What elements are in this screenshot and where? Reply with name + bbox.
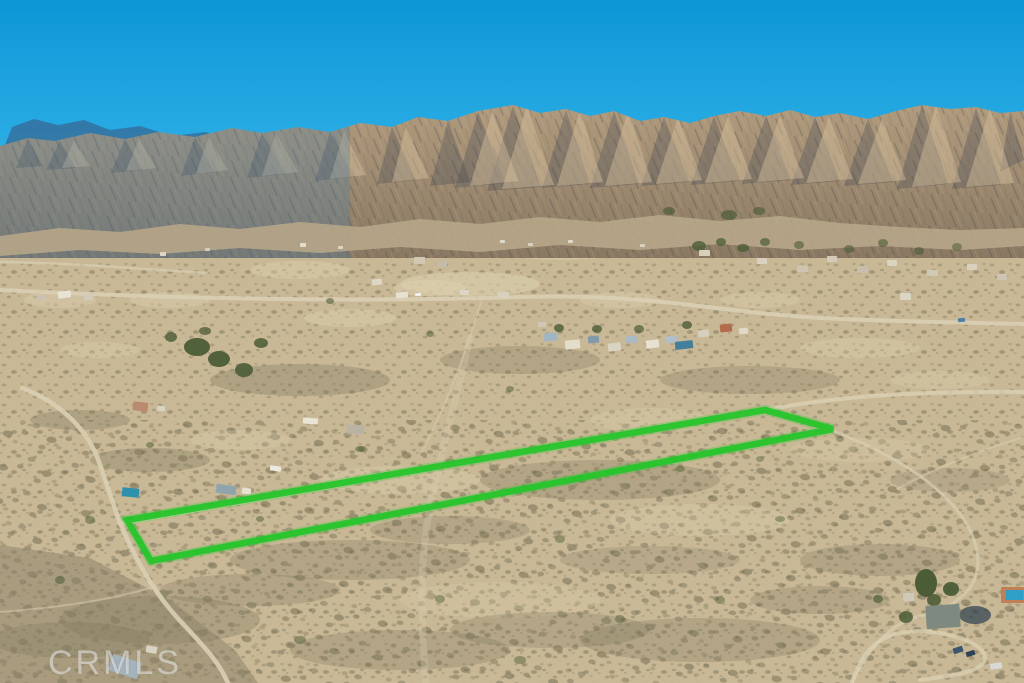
scrub-patch: [890, 468, 1010, 492]
scrub-patch: [90, 448, 210, 472]
building: [588, 335, 600, 343]
tree: [914, 247, 924, 255]
building: [626, 335, 638, 343]
building: [857, 266, 868, 273]
tree: [592, 325, 602, 333]
building: [38, 295, 46, 300]
tree: [952, 243, 962, 251]
shadow-pond: [959, 606, 991, 624]
building: [347, 424, 365, 434]
scrub-patch: [800, 544, 960, 576]
tree: [426, 331, 434, 337]
tree: [435, 595, 445, 603]
tree: [634, 325, 644, 333]
scrub-patch: [290, 630, 510, 670]
tree: [775, 516, 785, 522]
building: [903, 593, 915, 602]
scrub-patch: [230, 540, 470, 580]
building: [300, 243, 306, 247]
building: [133, 401, 149, 412]
shadow-pond: [959, 606, 991, 624]
tree: [873, 595, 883, 603]
tree: [85, 516, 95, 524]
tree: [844, 245, 854, 253]
building: [640, 244, 645, 247]
tree: [682, 321, 692, 329]
building: [739, 328, 749, 335]
building: [797, 266, 808, 272]
aerial-photo-canvas: [0, 0, 1024, 683]
tree: [663, 207, 675, 215]
building: [122, 487, 140, 498]
tree: [294, 636, 306, 644]
desert-floor: [0, 195, 1024, 683]
building: [84, 293, 94, 300]
tree: [256, 516, 264, 522]
tree: [692, 241, 706, 251]
tree: [555, 535, 565, 543]
scrub-patch: [660, 366, 840, 394]
building: [372, 278, 383, 285]
building: [646, 339, 660, 348]
tree: [753, 207, 765, 215]
tree: [235, 363, 253, 377]
tree: [146, 442, 154, 448]
tree: [514, 656, 526, 664]
tree: [927, 594, 941, 606]
tree: [506, 386, 514, 392]
sand-clearing: [610, 504, 790, 536]
building: [160, 252, 166, 256]
building: [205, 248, 210, 251]
sand-clearing: [800, 338, 920, 358]
sand-clearing: [890, 371, 990, 389]
tree: [184, 338, 210, 356]
building: [538, 322, 546, 328]
building: [414, 257, 425, 264]
tree: [794, 241, 804, 249]
building: [303, 417, 318, 424]
tree: [615, 615, 625, 623]
tree: [836, 436, 844, 442]
tree: [355, 446, 365, 452]
tree: [721, 210, 737, 220]
aerial-photo: CRMLS: [0, 0, 1024, 683]
tree: [737, 244, 749, 252]
scrub-patch: [370, 516, 530, 544]
tree: [675, 466, 685, 472]
building: [396, 291, 409, 298]
tree: [878, 239, 888, 247]
tree: [899, 611, 913, 623]
building: [967, 264, 977, 270]
building: [997, 274, 1007, 280]
building: [338, 246, 343, 249]
building: [437, 261, 447, 267]
building: [528, 243, 533, 246]
building: [1006, 590, 1023, 600]
tree: [326, 298, 334, 304]
building: [757, 258, 767, 264]
tree: [199, 327, 211, 335]
scrub-patch: [560, 546, 740, 574]
building: [958, 318, 965, 322]
building: [500, 240, 505, 243]
tree: [55, 576, 65, 584]
tree: [554, 324, 564, 332]
building: [565, 339, 581, 350]
building: [925, 604, 961, 629]
building: [699, 250, 710, 256]
building: [415, 293, 421, 296]
tree: [716, 238, 726, 246]
building: [498, 292, 509, 299]
tree: [715, 596, 725, 604]
sand-clearing: [190, 430, 290, 450]
building: [900, 293, 911, 300]
building: [460, 290, 469, 295]
tree: [254, 338, 268, 348]
scrub-patch: [750, 586, 890, 614]
tree: [915, 569, 937, 597]
sand-clearing: [720, 292, 800, 308]
scrub-patch: [160, 574, 340, 606]
building: [927, 270, 938, 276]
tree: [208, 351, 230, 367]
tree: [756, 456, 764, 462]
building: [608, 342, 622, 351]
building: [827, 256, 837, 262]
building: [544, 332, 558, 341]
tree: [165, 332, 177, 342]
sand-clearing: [304, 309, 396, 327]
tree: [760, 238, 770, 246]
building: [568, 240, 573, 243]
tree: [943, 582, 959, 596]
building: [720, 323, 733, 332]
building: [887, 260, 897, 266]
sand-clearing: [60, 342, 140, 358]
building: [157, 406, 165, 412]
building: [242, 487, 252, 494]
sand-clearing: [250, 261, 350, 279]
building: [698, 329, 710, 337]
